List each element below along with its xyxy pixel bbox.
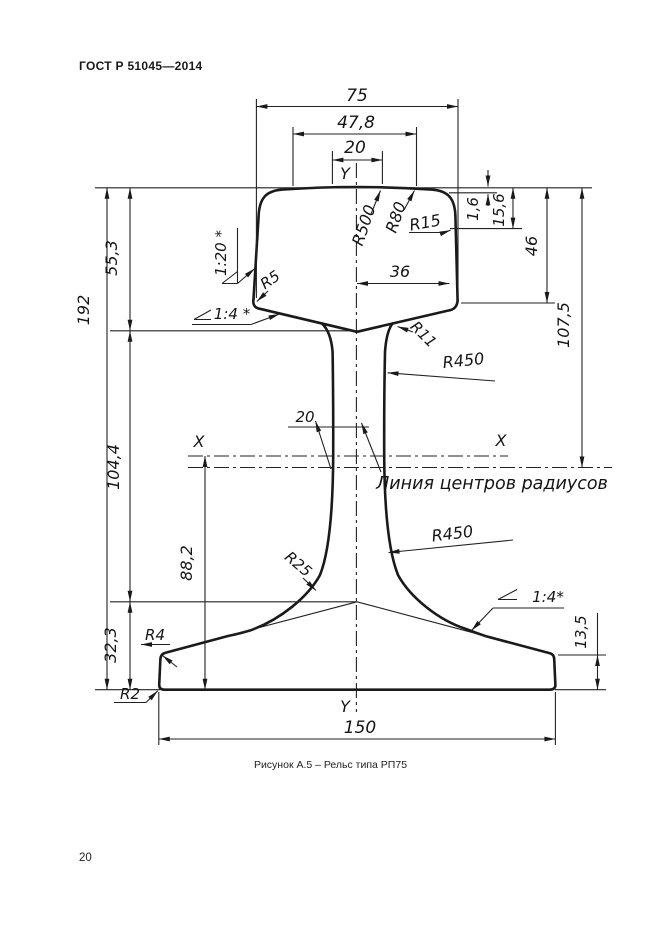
- dim-1-6: 1,6: [464, 197, 482, 221]
- dim-47-8: 47,8: [337, 113, 375, 133]
- leader-slope-1-4-left: [251, 314, 280, 325]
- rail-profile-drawing: 75 47,8 20 Y R500 R80 R15 1,6 15,6 46 10…: [0, 0, 661, 935]
- dim-20-top: 20: [344, 138, 366, 158]
- note-radius-centers: Линия центров радиусов: [375, 474, 608, 494]
- slope-label-1-4-right: 1:4*: [532, 588, 564, 606]
- dim-32-3: 32,3: [101, 627, 120, 663]
- radius-r80: R80: [382, 199, 410, 235]
- slope-label-1-20: 1:20 *: [212, 230, 230, 276]
- slope-1-4-left-icon: [194, 310, 211, 320]
- dim-15-6: 15,6: [490, 193, 508, 226]
- axis-label-x-left: X: [193, 432, 206, 451]
- rail-web-and-foot-outline: [159, 324, 555, 690]
- dim-55-3: 55,3: [102, 240, 121, 276]
- slope-1-4-right-icon: [498, 590, 517, 600]
- leader-slope-1-20: [238, 269, 255, 284]
- dim-20-web: 20: [295, 408, 314, 426]
- witness-20-web-right: [362, 423, 382, 472]
- page: { "page": { "header": "ГОСТ Р 51045—2014…: [0, 0, 661, 935]
- radius-r15: R15: [408, 210, 442, 234]
- foot-slope-construction-right: [357, 602, 486, 636]
- dim-13-5: 13,5: [572, 615, 590, 648]
- dim-88-2: 88,2: [177, 545, 196, 581]
- axis-label-y-top: Y: [340, 164, 351, 183]
- dim-36: 36: [390, 262, 410, 281]
- axis-label-y-bottom: Y: [340, 697, 351, 716]
- radius-r500: R500: [348, 202, 380, 248]
- dim-46: 46: [522, 236, 541, 256]
- radius-r450-foot: R450: [430, 522, 474, 546]
- radius-r2: R2: [120, 685, 140, 703]
- leader-r4: [163, 656, 178, 668]
- leader-r2: [146, 691, 158, 703]
- witness-20-web-left: [316, 421, 332, 469]
- rail-head-underside-right: [357, 301, 458, 332]
- dim-107-5: 107,5: [554, 302, 573, 348]
- figure-caption: Рисунок А.5 – Рельс типа РП75: [0, 759, 661, 771]
- dim-192: 192: [74, 295, 93, 326]
- rail-head-underside-left: [253, 299, 357, 332]
- radius-r450-web: R450: [442, 349, 485, 372]
- radius-r5: R5: [257, 267, 284, 293]
- radius-r4: R4: [145, 626, 165, 644]
- slope-label-1-4-left: 1:4 *: [214, 305, 251, 323]
- page-number: 20: [79, 852, 92, 864]
- leader-r450-web: [388, 373, 496, 381]
- axis-label-x-right: X: [495, 431, 508, 450]
- radius-r11: R11: [407, 318, 441, 352]
- dim-75: 75: [346, 86, 368, 106]
- dim-104-4: 104,4: [104, 444, 123, 490]
- radius-r25: R25: [281, 548, 315, 581]
- dim-150: 150: [344, 718, 376, 738]
- leader-slope-1-4-right: [472, 608, 494, 631]
